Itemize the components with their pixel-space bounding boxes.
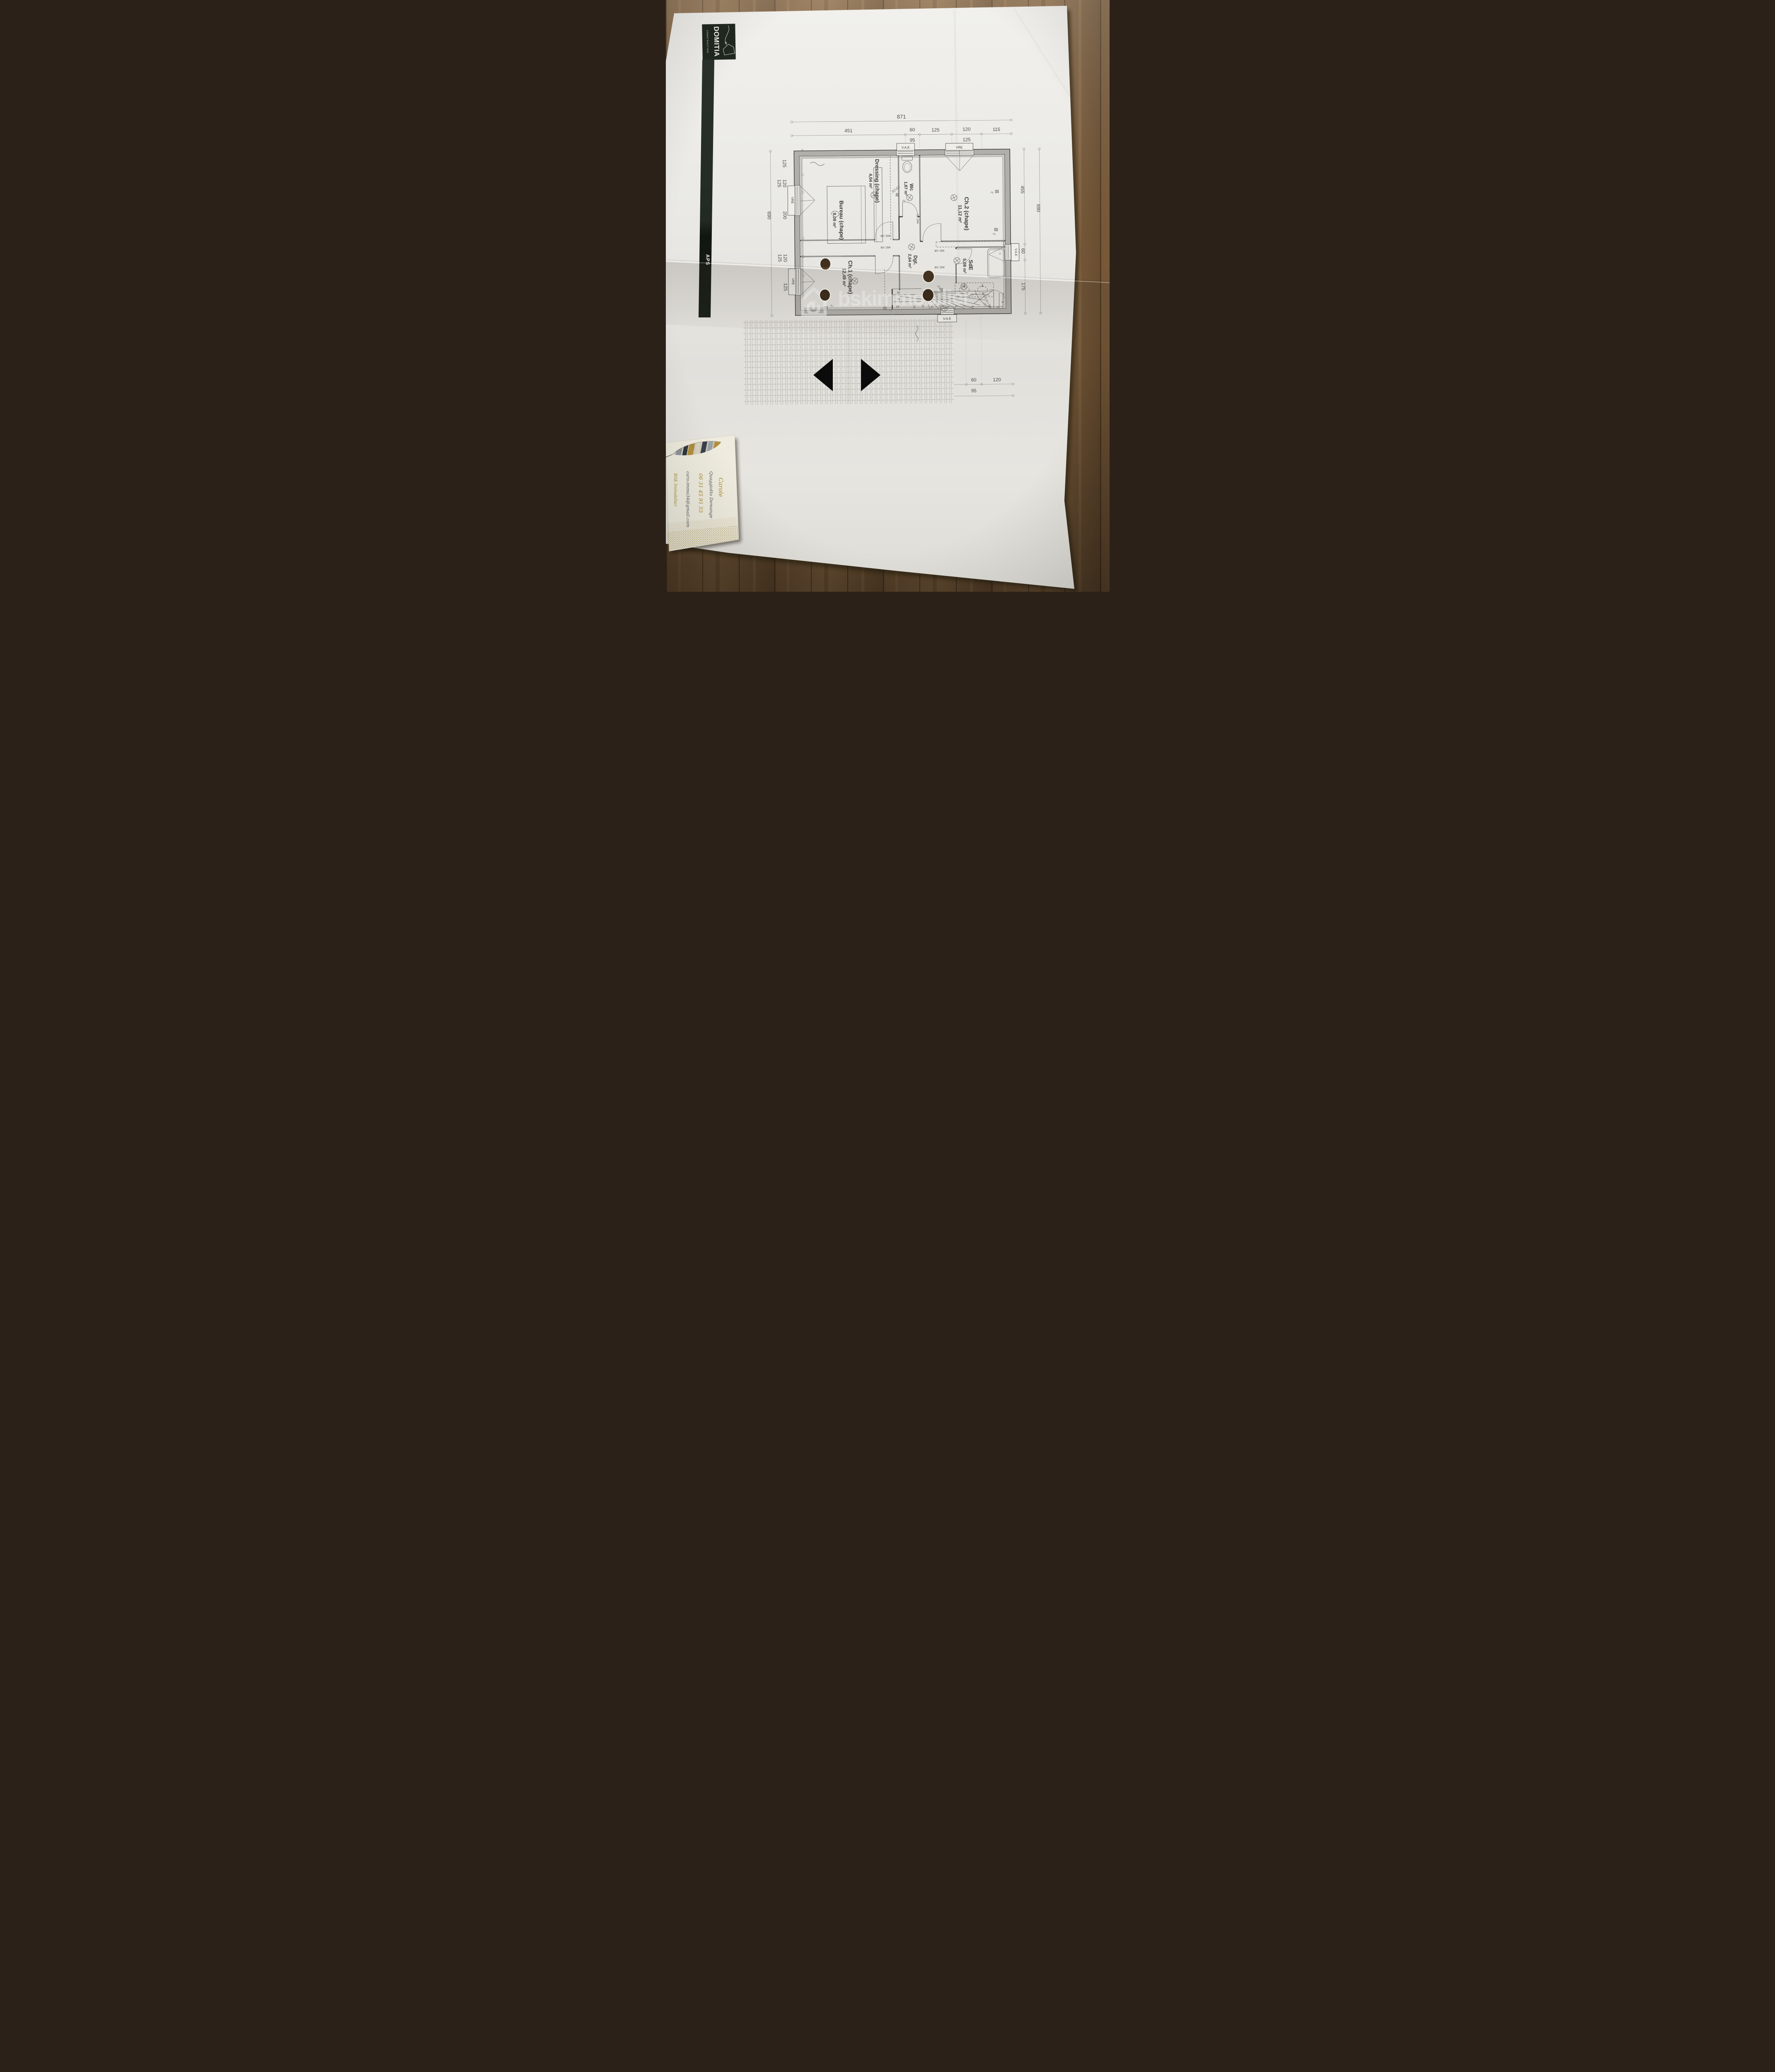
photo-of-floor-plan: DOMITIA CONSTRUCTION APS 871 451 60 95 1… [666,0,1110,592]
photo-vignette [666,0,1110,592]
